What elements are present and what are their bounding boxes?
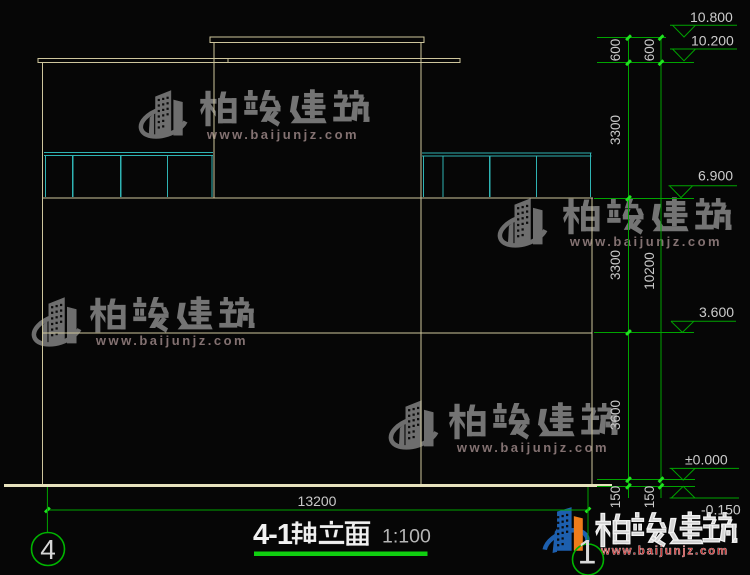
svg-text:150: 150 [608,486,623,509]
svg-text:±0.000: ±0.000 [685,452,728,468]
svg-text:13200: 13200 [298,493,337,509]
svg-text:1: 1 [578,534,597,572]
svg-text:-0.150: -0.150 [701,502,741,518]
svg-text:600: 600 [608,39,623,62]
svg-text:3300: 3300 [608,250,623,280]
svg-text:10.800: 10.800 [690,9,733,25]
svg-text:10.200: 10.200 [691,33,734,49]
svg-text:6.900: 6.900 [698,168,733,184]
svg-text:600: 600 [642,39,657,62]
svg-text:10200: 10200 [642,252,657,290]
svg-text:www.baijunjz.com: www.baijunjz.com [600,546,729,558]
svg-text:www.baijunjz.com: www.baijunjz.com [456,440,609,455]
svg-text:1:100: 1:100 [382,526,431,548]
svg-text:3300: 3300 [608,115,623,145]
svg-text:www.baijunjz.com: www.baijunjz.com [206,127,359,142]
svg-text:www.baijunjz.com: www.baijunjz.com [95,333,248,348]
svg-text:3600: 3600 [608,400,623,430]
svg-text:4-1: 4-1 [253,519,293,551]
svg-text:150: 150 [642,486,657,509]
svg-text:4: 4 [40,534,56,565]
svg-text:3.600: 3.600 [699,304,734,320]
